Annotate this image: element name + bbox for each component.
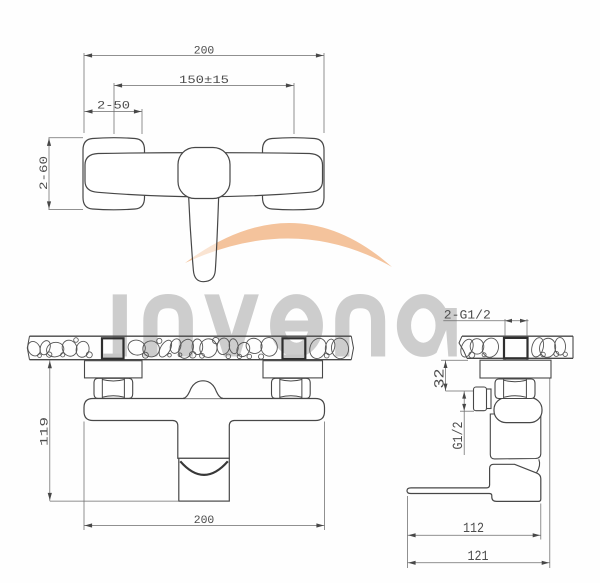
svg-text:2-50: 2-50: [97, 101, 130, 113]
svg-text:200: 200: [194, 46, 215, 58]
svg-text:2-G1/2: 2-G1/2: [444, 308, 491, 322]
svg-text:119: 119: [39, 417, 51, 446]
svg-text:G1/2: G1/2: [451, 422, 467, 450]
svg-text:200: 200: [194, 515, 215, 527]
svg-text:2-60: 2-60: [39, 156, 51, 190]
svg-text:112: 112: [463, 521, 484, 537]
svg-text:121: 121: [468, 549, 489, 565]
svg-text:150±15: 150±15: [179, 75, 229, 87]
svg-text:32: 32: [433, 369, 449, 389]
